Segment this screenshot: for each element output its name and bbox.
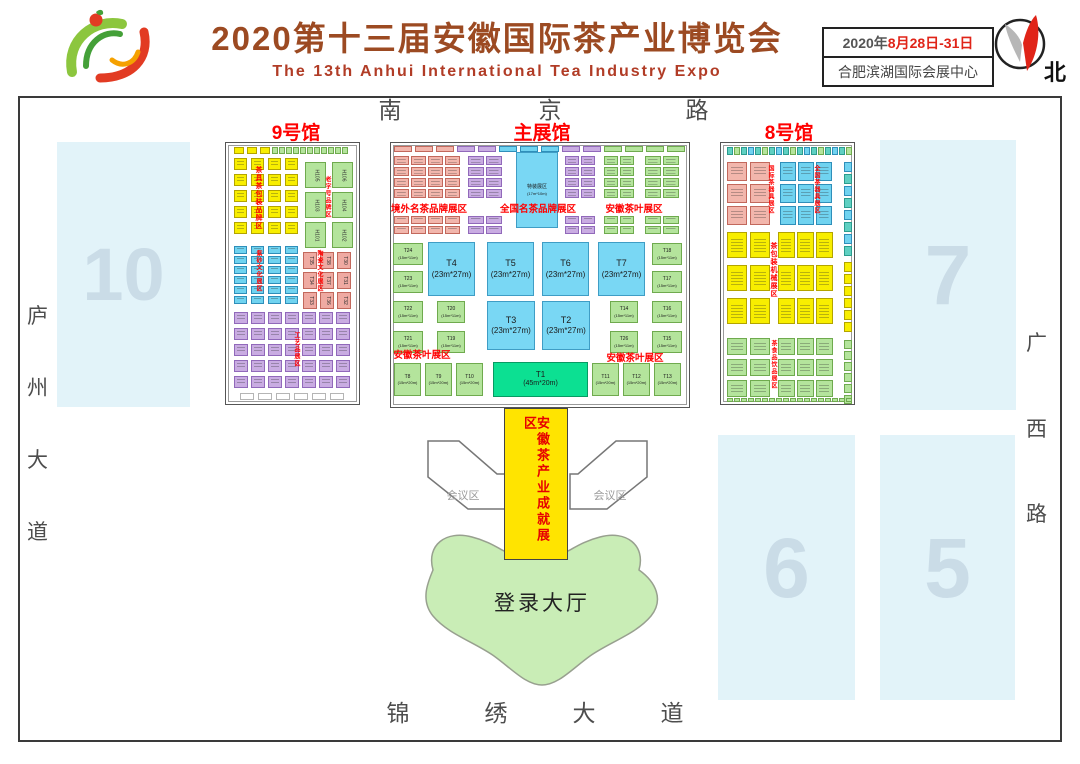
booth-cell	[268, 158, 281, 170]
booth-cell	[268, 276, 281, 284]
booth-cell	[468, 189, 484, 198]
booth-cell	[750, 380, 770, 397]
booth-cell	[411, 189, 426, 198]
booth-cell	[302, 376, 316, 388]
booth-cell	[285, 266, 298, 274]
booth-cell	[285, 222, 298, 234]
booth-cell	[234, 296, 247, 304]
booth-cell	[312, 393, 326, 400]
booth-cell	[234, 344, 248, 356]
booth-cell	[468, 167, 484, 176]
booth-cell	[741, 147, 747, 155]
booth-cell	[394, 226, 409, 234]
booth-T24: T24(15m*11m)	[393, 243, 423, 265]
booth-cell	[727, 359, 747, 376]
booth-cell	[844, 274, 852, 284]
booth-T31: T31	[337, 272, 351, 289]
booth-cell	[478, 146, 496, 152]
zone-label-vertical: 茶食品饮品展区	[770, 340, 776, 389]
booth-cell	[234, 376, 248, 388]
expo-logo-icon	[56, 6, 176, 90]
booth-cell	[268, 360, 282, 372]
booth-id: H106	[340, 169, 345, 181]
booth-cell	[286, 147, 292, 154]
zone-label-vertical: 茶包装机械展区	[770, 242, 777, 298]
booth-id: T1	[536, 370, 545, 380]
booth-cell	[783, 398, 789, 402]
hall-block-number: 7	[925, 233, 972, 317]
booth-size: (17m*10m)	[527, 191, 547, 196]
booth-cell	[604, 156, 618, 165]
booth-T2: T2(23m*27m)	[542, 301, 590, 350]
booth-cell	[445, 178, 460, 187]
booth-cell	[285, 256, 298, 264]
booth-cell	[798, 162, 814, 181]
road-label-jinxiu: 道	[661, 702, 684, 725]
date-venue-box: 2020年8月28日-31日 合肥滨湖国际会展中心	[822, 27, 994, 87]
booth-cell	[565, 216, 579, 224]
booth-cell	[798, 206, 814, 225]
booth-cell	[234, 312, 248, 324]
booth-id: T30	[342, 256, 347, 265]
booth-cell	[797, 232, 814, 258]
booth-cell	[748, 398, 754, 402]
road-label-jinxiu: 锦	[387, 702, 410, 725]
booth-cell	[285, 190, 298, 202]
booth-cell	[750, 359, 770, 376]
booth-cell	[645, 216, 661, 224]
booth-size: (15m*11m)	[657, 313, 677, 318]
booth-T8: T8(15m*20m)	[394, 363, 421, 396]
booth-cell	[604, 226, 618, 234]
booth-cell	[457, 146, 475, 152]
booth-cell	[797, 338, 814, 355]
booth-H106: H106	[332, 162, 353, 188]
booth-cell	[778, 232, 795, 258]
booth-cell	[285, 206, 298, 218]
booth-T20: T20(15m*11m)	[437, 301, 465, 323]
booth-cell	[620, 167, 634, 176]
booth-cell	[780, 162, 796, 181]
zone-label-vertical: 茶具茶包装品牌区	[255, 166, 262, 230]
booth-T1: T1(45m*20m)	[493, 362, 588, 397]
road-label-nanjing: 南	[379, 99, 402, 122]
booth-cell	[762, 398, 768, 402]
booth-cell	[844, 384, 852, 393]
booth-cell	[604, 216, 618, 224]
booth-cell	[750, 338, 770, 355]
booth-cell	[302, 360, 316, 372]
booth-size: (23m*27m)	[491, 270, 531, 280]
booth-cell	[234, 276, 247, 284]
booth-cell	[790, 398, 796, 402]
booth-cell	[260, 147, 270, 154]
booth-id: T4	[446, 258, 457, 269]
booth-cell	[727, 206, 747, 225]
zone-label-vertical: 陶瓷文化展区	[316, 250, 322, 292]
booth-id: T5	[505, 258, 516, 269]
booth-T6: T6(23m*27m)	[542, 242, 589, 296]
booth-cell	[839, 147, 845, 155]
booth-size: (45m*20m)	[523, 380, 558, 389]
booth-cell	[797, 380, 814, 397]
booth-cell	[319, 312, 333, 324]
booth-cell	[268, 296, 281, 304]
booth-cell	[268, 222, 281, 234]
booth-cell	[336, 360, 350, 372]
hall-block-number: 5	[924, 526, 971, 610]
booth-size: (23m*27m)	[546, 270, 586, 280]
booth-cell	[780, 206, 796, 225]
hall-9-label: 9号馆	[272, 118, 321, 145]
booth-cell	[411, 226, 426, 234]
booth-cell	[411, 167, 426, 176]
booth-size: (23m*27m)	[602, 270, 642, 280]
booth-cell	[445, 189, 460, 198]
booth-cell	[436, 146, 454, 152]
booth-size: (15m*11m)	[657, 343, 677, 348]
booth-cell	[811, 147, 817, 155]
booth-cell	[748, 147, 754, 155]
booth-size: (15m*11m)	[657, 283, 677, 288]
booth-cell	[268, 190, 281, 202]
booth-cell	[272, 147, 278, 154]
booth-cell	[445, 156, 460, 165]
booth-id: H101	[313, 229, 318, 241]
booth-cell	[844, 262, 852, 272]
date-range: 8月28日-31日	[888, 33, 974, 53]
booth-T9: T9(15m*20m)	[425, 363, 452, 396]
booth-size: (15m*20m)	[627, 380, 647, 385]
booth-cell	[604, 167, 618, 176]
booth-size: (15m*11m)	[657, 255, 677, 260]
booth-cell	[445, 216, 460, 224]
booth-cell	[411, 178, 426, 187]
booth-cell	[645, 167, 661, 176]
booth-T7: T7(23m*27m)	[598, 242, 645, 296]
booth-cell	[844, 198, 852, 208]
road-label-luzhou: 庐	[27, 306, 48, 327]
hall-block-10: 10	[57, 142, 190, 407]
booth-cell	[846, 398, 852, 402]
booth-cell	[247, 147, 257, 154]
booth-T34: T34	[303, 272, 317, 289]
booth-cell	[428, 189, 443, 198]
booth-cell	[727, 265, 747, 291]
booth-T32: T32	[337, 292, 351, 309]
booth-T18: T18(15m*11m)	[652, 243, 682, 265]
booth-cell	[581, 216, 595, 224]
compass-north-icon: 北	[990, 10, 1076, 90]
road-label-jinxiu: 大	[573, 702, 596, 725]
booth-cell	[268, 256, 281, 264]
booth-cell	[727, 380, 747, 397]
booth-id: T33	[308, 296, 313, 305]
header-title-block: 2020第十三届安徽国际茶产业博览会 The 13th Anhui Intern…	[183, 12, 811, 81]
booth-cell	[294, 393, 308, 400]
booth-cell	[285, 376, 299, 388]
booth-cell	[562, 146, 580, 152]
booth-cell	[268, 266, 281, 274]
booth-cell	[844, 222, 852, 232]
zone-label-vertical: 老字号品牌区	[324, 176, 330, 218]
road-label-luzhou: 道	[27, 522, 48, 543]
zone-label: 境外名茶品牌展区	[391, 201, 467, 215]
expo-dates: 2020年8月28日-31日	[824, 29, 992, 58]
booth-cell	[750, 298, 770, 324]
zone-label-vertical: 国际茶器具展区	[767, 165, 773, 214]
hall-block-number: 6	[763, 526, 810, 610]
booth-cell	[663, 178, 679, 187]
booth-cell	[394, 156, 409, 165]
booth-cell	[727, 398, 733, 402]
booth-cell	[825, 147, 831, 155]
booth-cell	[565, 178, 579, 187]
booth-cell	[844, 340, 852, 349]
booth-cell	[750, 265, 770, 291]
booth-cell	[797, 147, 803, 155]
booth-size: (15m*11m)	[398, 255, 418, 260]
booth-cell	[342, 147, 348, 154]
date-year: 2020年	[843, 33, 888, 53]
booth-cell	[268, 344, 282, 356]
booth-cell	[486, 226, 502, 234]
booth-cell	[727, 162, 747, 181]
booth-size: (23m*27m)	[546, 326, 586, 336]
booth-cell	[394, 178, 409, 187]
booth-size: (15m*20m)	[429, 380, 449, 385]
expo-floor-plan: 2020第十三届安徽国际茶产业博览会 The 13th Anhui Intern…	[0, 0, 1080, 764]
booth-cell	[319, 360, 333, 372]
booth-size: (15m*20m)	[596, 380, 616, 385]
booth-cell	[581, 189, 595, 198]
booth-cell	[846, 147, 852, 155]
booth-cell	[251, 328, 265, 340]
booth-T30: T30	[337, 252, 351, 269]
zone-label: 安徽茶叶展区	[393, 347, 450, 361]
booth-特装展区: 特装展区(17m*10m)	[516, 152, 558, 228]
booth-cell	[276, 393, 290, 400]
booth-cell	[240, 393, 254, 400]
hall-block-number: 10	[82, 238, 164, 312]
booth-size: (15m*11m)	[398, 283, 418, 288]
booth-cell	[268, 174, 281, 186]
booth-cell	[727, 232, 747, 258]
booth-cell	[565, 189, 579, 198]
booth-cell	[844, 298, 852, 308]
road-label-luzhou: 州	[27, 378, 48, 399]
zone-label: 安徽茶叶展区	[606, 350, 663, 364]
booth-cell	[328, 147, 334, 154]
booth-cell	[804, 398, 810, 402]
booth-cell	[790, 147, 796, 155]
booth-H105: H105	[305, 162, 326, 188]
booth-cell	[581, 156, 595, 165]
booth-cell	[251, 344, 265, 356]
booth-cell	[486, 189, 502, 198]
booth-id: T3	[506, 315, 517, 326]
booth-cell	[798, 184, 814, 203]
booth-cell	[663, 216, 679, 224]
booth-cell	[844, 362, 852, 371]
conference-area-left-label: 会议区	[447, 487, 480, 503]
booth-cell	[445, 226, 460, 234]
booth-cell	[268, 206, 281, 218]
booth-H103: H103	[305, 192, 326, 218]
booth-cell	[620, 189, 634, 198]
booth-cell	[762, 147, 768, 155]
booth-cell	[319, 328, 333, 340]
booth-cell	[565, 156, 579, 165]
booth-id: T35	[308, 256, 313, 265]
booth-cell	[234, 246, 247, 254]
booth-T11: T11(15m*20m)	[592, 363, 619, 396]
booth-cell	[428, 156, 443, 165]
booth-cell	[468, 178, 484, 187]
booth-cell	[741, 398, 747, 402]
zone-label-vertical: 工艺品展区	[293, 332, 299, 367]
booth-cell	[234, 328, 248, 340]
booth-cell	[336, 376, 350, 388]
booth-cell	[268, 246, 281, 254]
booth-size: (15m*20m)	[398, 380, 418, 385]
booth-cell	[302, 312, 316, 324]
booth-T35: T35	[303, 252, 317, 269]
achievement-zone-label: 安徽茶产业成就展区	[523, 416, 549, 559]
booth-cell	[663, 189, 679, 198]
booth-cell	[336, 328, 350, 340]
booth-cell	[279, 147, 285, 154]
booth-T23: T23(15m*11m)	[393, 271, 423, 293]
road-label-jinxiu: 绣	[485, 702, 508, 725]
booth-cell	[319, 344, 333, 356]
zone-label-vertical: 紫砂文化展区	[255, 250, 261, 292]
road-label-guangxi: 路	[1026, 504, 1047, 525]
booth-cell	[268, 286, 281, 294]
booth-cell	[234, 256, 247, 264]
achievement-zone-corridor: 安徽茶产业成就展区	[504, 408, 568, 560]
booth-cell	[285, 312, 299, 324]
booth-cell	[645, 226, 661, 234]
compass-label: 北	[1044, 60, 1066, 85]
booth-cell	[234, 222, 247, 234]
booth-cell	[234, 266, 247, 274]
booth-id: H102	[340, 229, 345, 241]
booth-cell	[844, 174, 852, 184]
booth-T12: T12(15m*20m)	[623, 363, 650, 396]
booth-cell	[844, 210, 852, 220]
booth-cell	[646, 146, 664, 152]
booth-cell	[468, 216, 484, 224]
booth-T3: T3(23m*27m)	[487, 301, 535, 350]
booth-cell	[620, 178, 634, 187]
booth-id: T36	[325, 296, 330, 305]
booth-cell	[844, 373, 852, 382]
booth-cell	[818, 147, 824, 155]
booth-cell	[816, 265, 833, 291]
booth-cell	[825, 398, 831, 402]
booth-cell	[499, 146, 517, 152]
booth-T38: T38	[320, 252, 334, 269]
booth-cell	[285, 276, 298, 284]
booth-cell	[581, 167, 595, 176]
booth-id: T2	[561, 315, 572, 326]
booth-cell	[797, 359, 814, 376]
booth-id: H103	[313, 199, 318, 211]
hall-block-7: 7	[880, 140, 1016, 410]
booth-cell	[335, 147, 341, 154]
booth-cell	[727, 338, 747, 355]
hall-block-5: 5	[880, 435, 1015, 700]
booth-cell	[778, 359, 795, 376]
booth-cell	[776, 398, 782, 402]
booth-id: T6	[560, 258, 571, 269]
booth-cell	[645, 178, 661, 187]
booth-cell	[844, 246, 852, 256]
booth-cell	[769, 398, 775, 402]
booth-cell	[734, 398, 740, 402]
booth-cell	[604, 189, 618, 198]
road-label-luzhou: 大	[27, 450, 48, 471]
zone-label: 全国名茶品牌展区	[500, 201, 576, 215]
booth-cell	[411, 216, 426, 224]
lobby-hall-label: 登录大厅	[494, 587, 590, 617]
booth-T16: T16(15m*11m)	[652, 301, 682, 323]
booth-T4: T4(23m*27m)	[428, 242, 475, 296]
road-label-guangxi: 广	[1026, 333, 1047, 354]
booth-size: (15m*20m)	[658, 380, 678, 385]
booth-cell	[839, 398, 845, 402]
booth-cell	[336, 312, 350, 324]
booth-H102: H102	[332, 222, 353, 248]
booth-cell	[645, 156, 661, 165]
booth-cell	[314, 147, 320, 154]
hall-8-label: 8号馆	[765, 118, 814, 145]
booth-cell	[604, 178, 618, 187]
hall-block-6: 6	[718, 435, 855, 700]
booth-id: T37	[325, 276, 330, 285]
booth-cell	[581, 226, 595, 234]
expo-title-en: The 13th Anhui International Tea Industr…	[183, 63, 811, 81]
booth-cell	[285, 158, 298, 170]
booth-size: (15m*11m)	[398, 313, 418, 318]
booth-cell	[251, 296, 264, 304]
booth-T5: T5(23m*27m)	[487, 242, 534, 296]
booth-cell	[234, 147, 244, 154]
booth-cell	[620, 156, 634, 165]
booth-cell	[620, 226, 634, 234]
booth-cell	[234, 174, 247, 186]
booth-size: (15m*11m)	[441, 313, 461, 318]
booth-cell	[816, 380, 833, 397]
booth-T14: T14(15m*11m)	[610, 301, 638, 323]
booth-cell	[780, 184, 796, 203]
booth-cell	[797, 398, 803, 402]
booth-T37: T37	[320, 272, 334, 289]
booth-cell	[268, 376, 282, 388]
booth-id: T34	[308, 276, 313, 285]
booth-cell	[428, 178, 443, 187]
booth-id: T32	[342, 296, 347, 305]
booth-cell	[302, 328, 316, 340]
booth-H104: H104	[332, 192, 353, 218]
booth-T17: T17(15m*11m)	[652, 271, 682, 293]
booth-cell	[625, 146, 643, 152]
booth-cell	[486, 216, 502, 224]
booth-cell	[832, 398, 838, 402]
booth-cell	[293, 147, 299, 154]
booth-cell	[394, 146, 412, 152]
